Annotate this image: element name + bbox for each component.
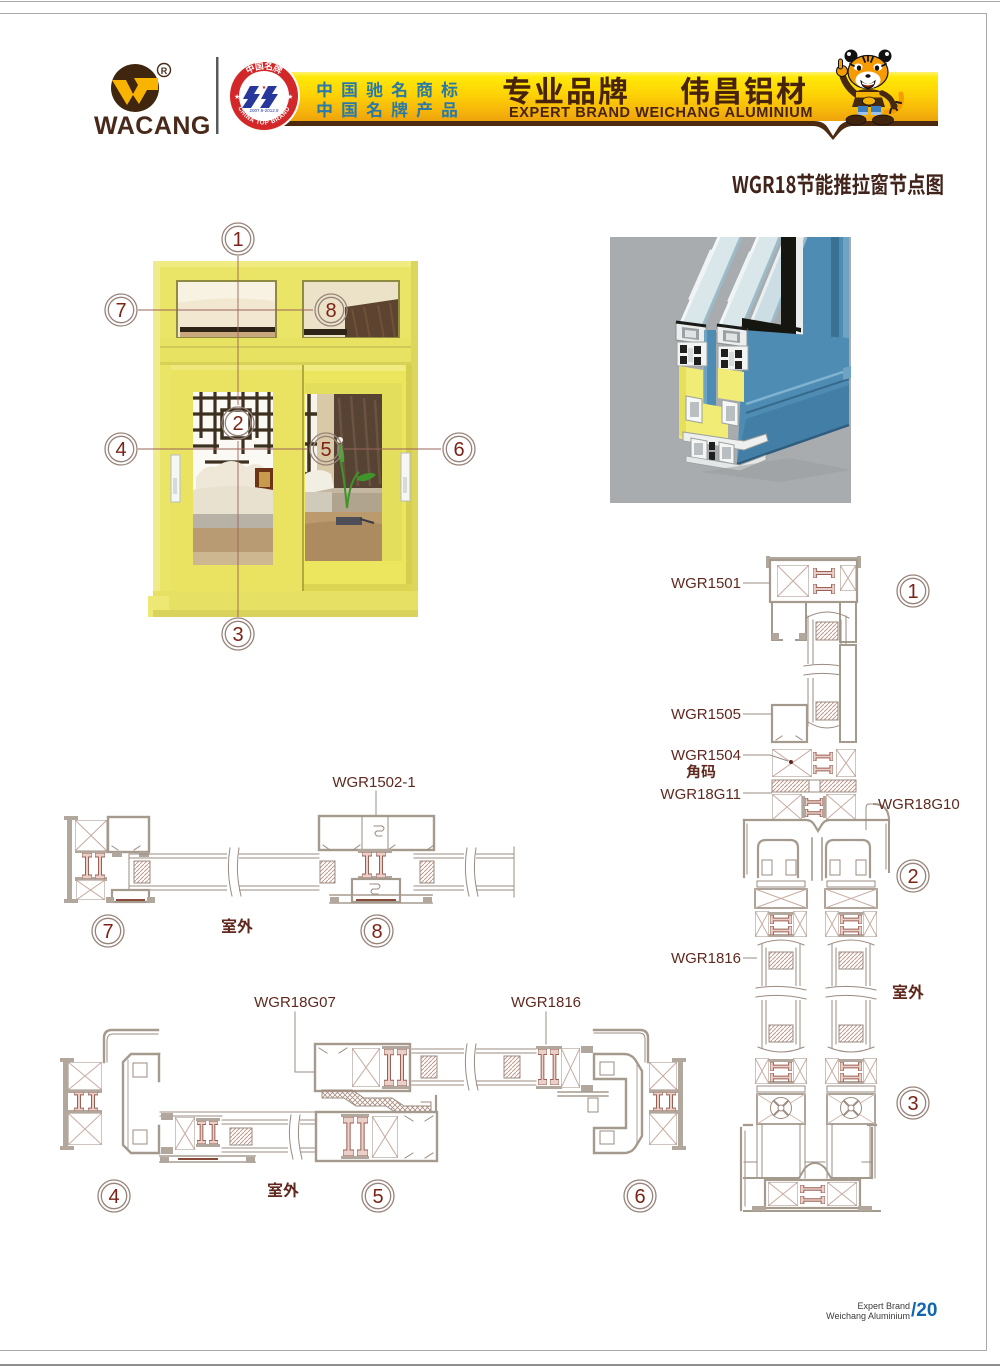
svg-text:WGR1816: WGR1816: [511, 994, 581, 1011]
svg-text:★: ★: [234, 93, 240, 101]
svg-text:8: 8: [371, 921, 382, 943]
svg-text:3: 3: [907, 1093, 918, 1115]
svg-text:WGR1501: WGR1501: [671, 575, 741, 592]
svg-text:R: R: [161, 66, 168, 76]
svg-text:WGR1816: WGR1816: [671, 950, 741, 967]
svg-text:WGR1504: WGR1504: [671, 747, 741, 764]
svg-text:WGR18G11: WGR18G11: [660, 786, 741, 803]
svg-text:4: 4: [115, 439, 126, 461]
svg-text:WGR18G10: WGR18G10: [878, 796, 960, 813]
svg-text:1: 1: [907, 581, 918, 603]
svg-text:WACANG: WACANG: [94, 112, 211, 140]
svg-text:6: 6: [634, 1186, 645, 1208]
svg-text:WGR1502-1: WGR1502-1: [332, 774, 415, 791]
svg-text:8: 8: [325, 300, 336, 322]
svg-text:1: 1: [232, 229, 243, 251]
svg-text:WGR1505: WGR1505: [671, 706, 741, 723]
svg-text:6: 6: [453, 439, 464, 461]
svg-text:5: 5: [372, 1186, 383, 1208]
svg-text:2: 2: [232, 413, 243, 435]
svg-text:7: 7: [102, 921, 113, 943]
svg-text:7: 7: [115, 300, 126, 322]
svg-text:2: 2: [907, 866, 918, 888]
svg-text:2007.9-2012.9: 2007.9-2012.9: [249, 108, 279, 113]
svg-text:★: ★: [262, 85, 267, 91]
svg-text:5: 5: [320, 439, 331, 461]
svg-text:4: 4: [108, 1186, 119, 1208]
svg-text:EXPERT BRAND WEICHANG ALUMINIU: EXPERT BRAND WEICHANG ALUMINIUM: [509, 105, 813, 121]
svg-text:★: ★: [287, 93, 293, 101]
svg-text:WGR18G07: WGR18G07: [254, 994, 336, 1011]
